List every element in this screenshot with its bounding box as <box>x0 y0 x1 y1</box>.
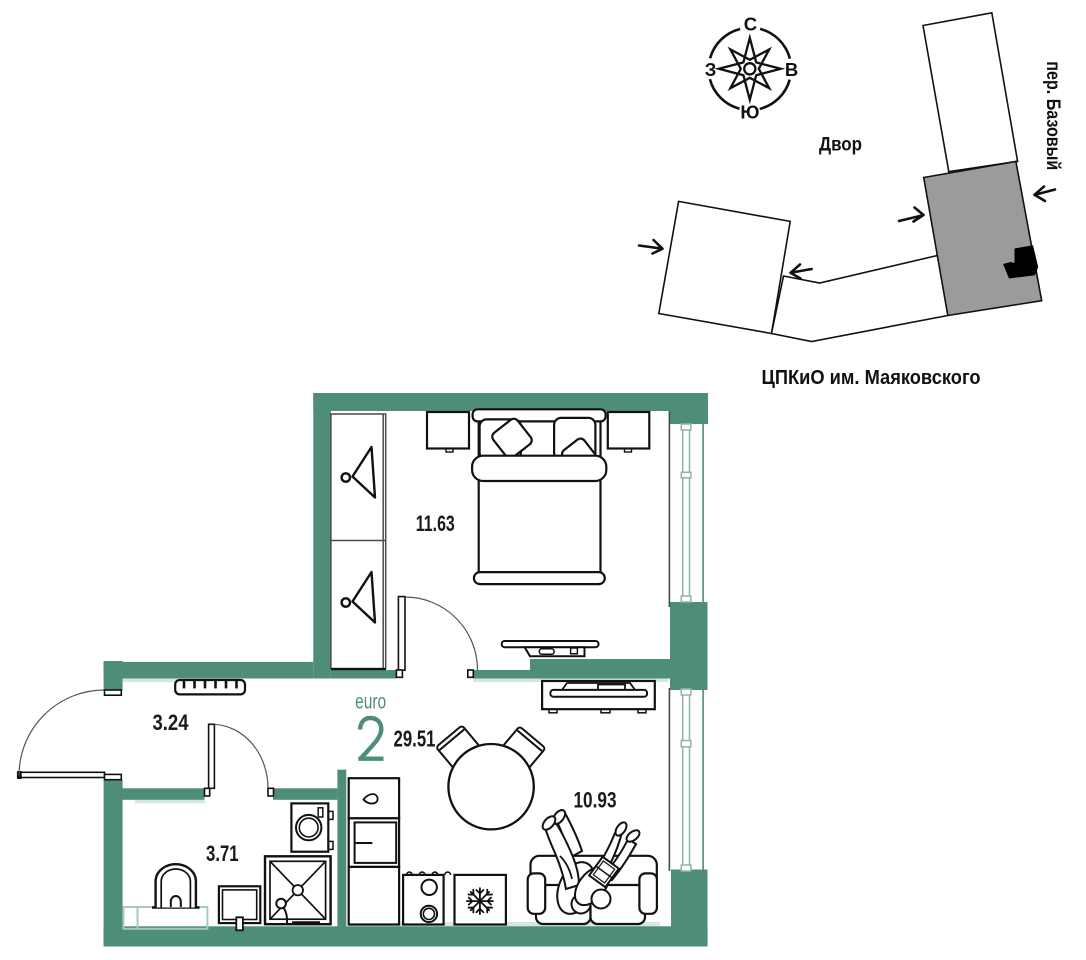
svg-text:10.93: 10.93 <box>574 788 617 813</box>
svg-text:3.24: 3.24 <box>153 710 190 735</box>
svg-text:пер. Базовый: пер. Базовый <box>1042 61 1064 170</box>
svg-text:3.71: 3.71 <box>206 841 239 866</box>
svg-text:euro: euro <box>355 691 386 714</box>
svg-text:В: В <box>785 59 798 80</box>
svg-text:11.63: 11.63 <box>416 511 455 536</box>
svg-text:29.51: 29.51 <box>394 726 436 752</box>
svg-text:З: З <box>705 59 717 80</box>
svg-text:С: С <box>744 14 757 35</box>
svg-text:Двор: Двор <box>819 134 862 156</box>
svg-text:ЦПКиО им. Маяковского: ЦПКиО им. Маяковского <box>762 367 981 389</box>
svg-text:Ю: Ю <box>740 102 759 123</box>
